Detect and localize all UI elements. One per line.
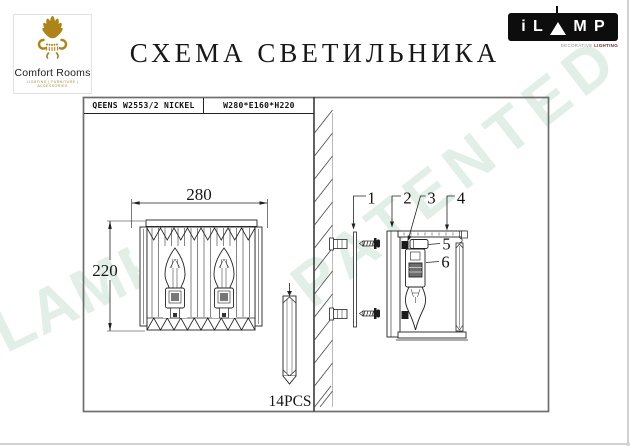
brand-tagline: LIGHTING | FURNITURE | ACCESSORIES [14, 80, 91, 88]
spec-size-cell: W280*E160*H220 [204, 98, 314, 114]
side-candle-bulb [405, 287, 425, 330]
wall-hatching [315, 110, 333, 407]
lamp-triangle-icon [550, 22, 566, 35]
socket-arm [410, 240, 428, 249]
mounting-strip [354, 232, 357, 327]
comfort-rooms-logo: Comfort Rooms LIGHTING | FURNITURE | ACC… [13, 14, 92, 94]
callout-5: 5 [442, 235, 450, 254]
wall-section [314, 97, 333, 412]
screw-top [360, 238, 381, 249]
ilamp-tagline: DECORATIVE LIGHTING [508, 43, 618, 48]
screw-bottom [360, 308, 381, 319]
callout-2: 2 [403, 189, 411, 208]
ilamp-letter: i [521, 19, 525, 35]
ilamp-letter: P [594, 19, 605, 35]
height-dimension: 220 [92, 221, 145, 331]
lamp-profile [387, 231, 468, 340]
ilamp-letter: M [573, 19, 586, 35]
brand-name: Comfort Rooms [14, 67, 91, 79]
callout-4: 4 [457, 189, 465, 208]
callout-1: 1 [367, 189, 375, 208]
window-bottom-edge [0, 443, 630, 445]
side-view: 1 2 3 4 5 6 [330, 189, 469, 341]
candle-bulb-right [212, 246, 236, 318]
candle-bulb-left [163, 246, 187, 318]
window-right-edge [627, 0, 629, 446]
front-lamp-body [140, 220, 262, 330]
width-dimension-label: 280 [186, 185, 212, 204]
ilamp-tagline-accent: LIGHTING [594, 43, 618, 48]
ilamp-tagline-main: DECORATIVE [561, 43, 594, 48]
callout-3: 3 [427, 189, 435, 208]
ilamp-logo: i L M P [508, 13, 618, 41]
crystal-count-label: 14PCS [268, 393, 311, 410]
crystal-rod-detail: 14PCS [268, 283, 311, 410]
height-dimension-label: 220 [92, 261, 118, 280]
socket-housing [406, 249, 426, 287]
spec-model-cell: QEENS W2553/2 NICKEL [84, 98, 204, 114]
callout-6: 6 [441, 253, 449, 272]
front-view: 280 220 [92, 185, 267, 331]
ilamp-letter: L [533, 19, 543, 35]
crown-icon [15, 15, 90, 61]
wall-anchor-bottom [330, 308, 348, 320]
side-crystal-rod [456, 231, 463, 331]
page-title: СХЕМА СВЕТИЛЬНИКА [110, 38, 520, 69]
wall-anchor-top [330, 238, 348, 250]
